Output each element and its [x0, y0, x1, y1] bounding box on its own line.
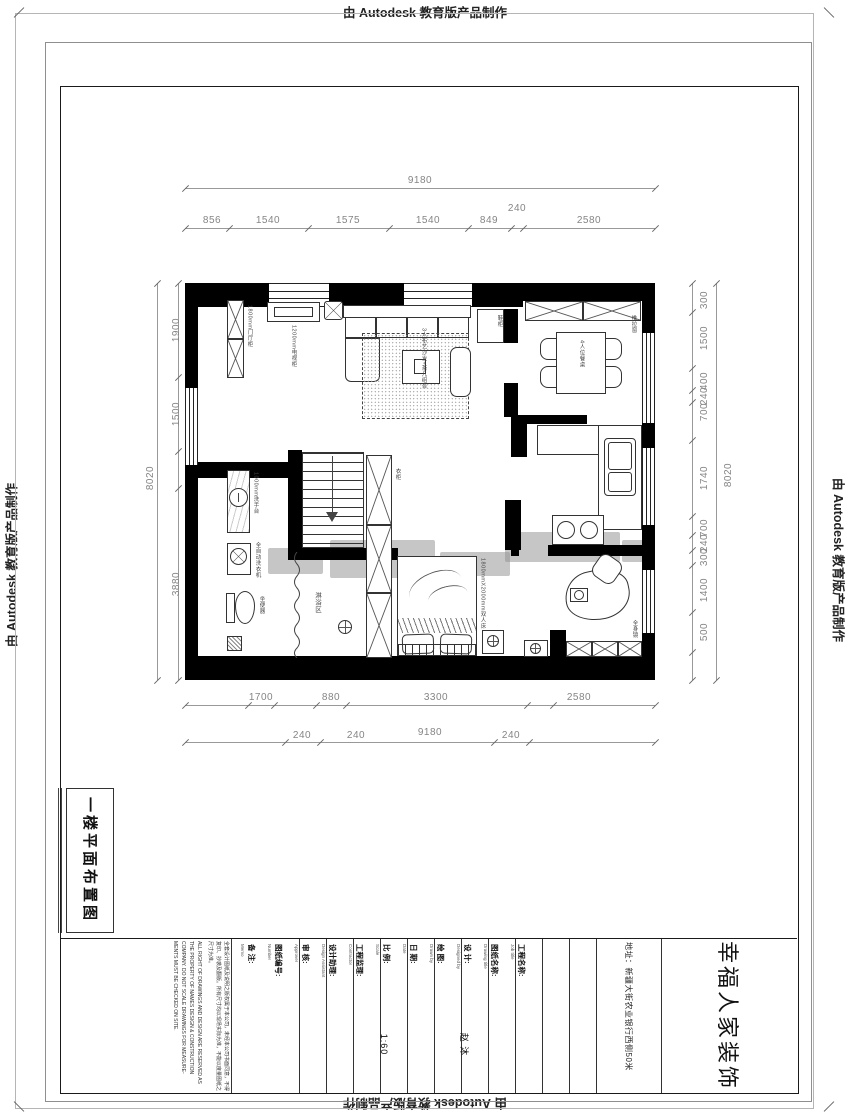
- dim-right-total: 8020: [722, 453, 734, 497]
- company-name: 幸福人家装饰: [714, 941, 746, 1091]
- dim: 700: [698, 390, 710, 434]
- wardrobe: [366, 593, 392, 658]
- drawing-title-box: 一楼平面布置图: [66, 788, 114, 933]
- dim: 240: [495, 202, 539, 214]
- dim: 3300: [414, 691, 458, 703]
- label-rule: [58, 788, 59, 933]
- address-cell: 地址：新疆大街农业银行西侧50米: [597, 939, 662, 1093]
- floor-drain: [227, 636, 242, 651]
- fan-icon: [530, 643, 541, 654]
- kitchen-counter: [537, 425, 599, 455]
- dim: 1900: [170, 308, 182, 352]
- shower-label: 淋浴区: [313, 592, 320, 613]
- dim: 3880: [170, 562, 182, 606]
- basin-label: 1000mm洗手台: [252, 472, 258, 514]
- wardrobe: [366, 455, 392, 525]
- tv: [274, 307, 313, 317]
- dim: 2580: [557, 691, 601, 703]
- headboard: [397, 644, 477, 656]
- mirror-label: 全身镜: [631, 620, 637, 638]
- wardrobe-label: 衣柜: [394, 468, 400, 480]
- stairs-down-arrow-icon: [326, 512, 338, 528]
- window: [642, 333, 655, 423]
- field-job-title: 工程名称:Job title: [570, 939, 597, 1093]
- toilet-tank: [226, 593, 235, 623]
- label-rule: [61, 788, 62, 933]
- dining-chair: [540, 338, 557, 360]
- low-cabinet: [618, 641, 642, 657]
- title-block: 全套设计图纸及说明之版权属于本公司，未经本公司书面同意，不得复印、抄袭及翻版。所…: [60, 938, 797, 1093]
- speaker-icon: [324, 301, 343, 320]
- company-cell: 幸福人家装饰: [662, 939, 797, 1093]
- dim: 1540: [406, 214, 450, 226]
- dim: 2580: [567, 214, 611, 226]
- burner: [557, 521, 575, 539]
- field-label: 工程名称:: [517, 944, 528, 996]
- dining-chair: [605, 338, 622, 360]
- ottoman: [450, 347, 471, 397]
- window-label: 推拉窗: [630, 315, 636, 333]
- burner: [580, 521, 598, 539]
- dim: 1500: [170, 392, 182, 436]
- dining-cabinet: [525, 301, 583, 321]
- low-cabinet: [592, 641, 618, 657]
- dim: 856: [190, 214, 234, 226]
- dim: 1400: [698, 568, 710, 612]
- dim: 500: [698, 610, 710, 654]
- entry-cabinet: [227, 339, 244, 378]
- lamp-icon: [487, 635, 499, 647]
- dim: 9180: [408, 726, 452, 738]
- window: [642, 448, 655, 525]
- company-address: 地址：新疆大街农业银行西侧50米: [623, 939, 634, 1071]
- dim: 849: [467, 214, 511, 226]
- dim-left-total: 8020: [144, 456, 156, 500]
- autodesk-stamp-right: 由 Autodesk 教育版产品制作: [833, 460, 849, 660]
- shoe-cabinet-label: 鞋柜: [496, 315, 502, 327]
- dim: 1540: [246, 214, 290, 226]
- shower-curtain: [292, 552, 302, 658]
- tv-cabinet-label: 1200mm电视柜: [290, 325, 296, 367]
- field-sublabel: Job title: [511, 944, 516, 996]
- sink-basin: [608, 442, 632, 470]
- dim: 880: [309, 691, 353, 703]
- computer-screen: [574, 590, 584, 600]
- drawing-sheet: 由 Autodesk 教育版产品制作 由 Autodesk 教育版产品制作 由 …: [0, 0, 850, 1120]
- toilet-label: 坐便器: [258, 596, 264, 614]
- window: [642, 570, 655, 633]
- washer-drum: [230, 548, 247, 565]
- dining-chair: [540, 366, 557, 388]
- drawing-title: 一楼平面布置图: [80, 797, 101, 923]
- dim: 1500: [698, 316, 710, 360]
- dining-table-label: 4人位餐桌: [578, 340, 584, 368]
- dim: 1740: [698, 456, 710, 500]
- stairs-centerline: [332, 456, 333, 514]
- window: [404, 283, 472, 307]
- dim-top-total: 9180: [398, 174, 442, 186]
- sofa-label: 3人布艺沙发+茶几组合: [420, 328, 426, 389]
- blanket-fold: [398, 618, 476, 633]
- dim: 240: [334, 729, 378, 741]
- shower-head-icon: [338, 620, 352, 634]
- window: [185, 388, 198, 465]
- stairs: [302, 452, 364, 548]
- dim: 1575: [326, 214, 370, 226]
- dining-chair: [605, 366, 622, 388]
- faucet-icon: [238, 493, 239, 502]
- entry-cabinet-label: 1800mm门厅柜: [246, 305, 252, 347]
- washer-label: 全自动洗衣机: [254, 542, 260, 578]
- wardrobe: [366, 525, 392, 593]
- entry-cabinet: [227, 300, 244, 339]
- sink-basin: [608, 472, 632, 492]
- low-cabinet: [566, 641, 592, 657]
